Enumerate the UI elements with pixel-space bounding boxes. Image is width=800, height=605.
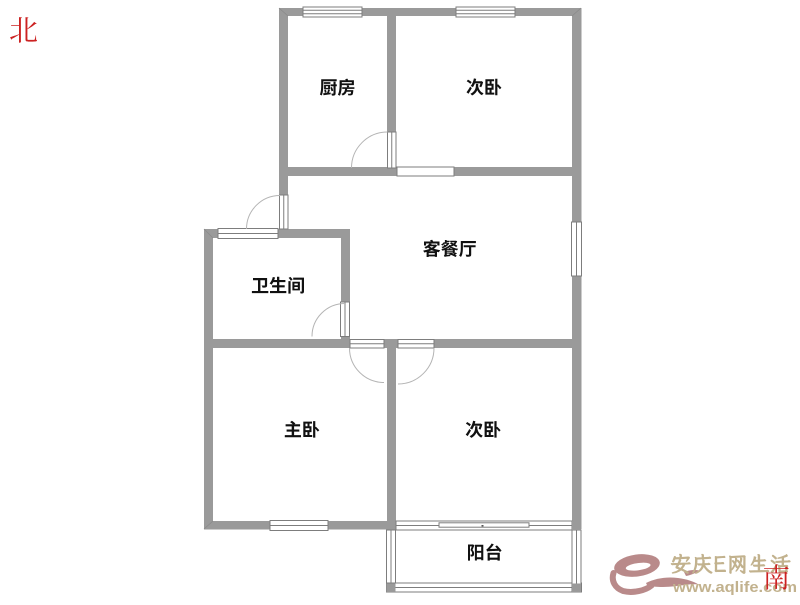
svg-text:www.aqlife.com: www.aqlife.com — [672, 580, 797, 596]
